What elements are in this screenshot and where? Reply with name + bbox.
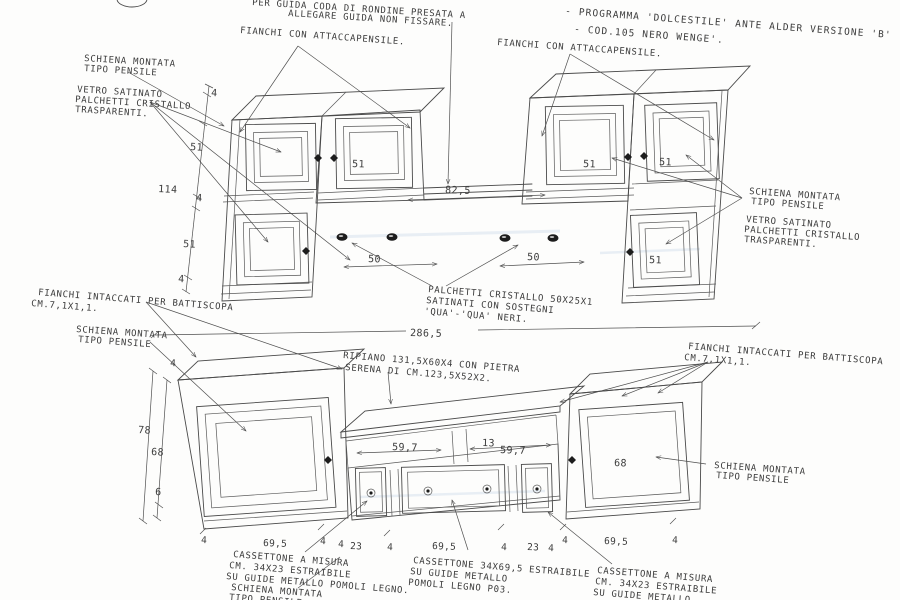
upper-view: 4 51 114 4 51 4 51 51 51 51 82,5 50 50 [128, 22, 750, 303]
drawer-band [348, 444, 560, 520]
dim-total-height: 114 [158, 184, 178, 196]
compartment-dividers [452, 429, 468, 464]
dim-bottom: 4 [178, 274, 185, 285]
dim-door-height: 68 [151, 447, 164, 459]
dim-top-thickness: 4 [211, 88, 218, 99]
glass-door-upper-left-2 [335, 117, 412, 188]
dim-knob-right: 50 [527, 252, 540, 263]
base-right-top-face [570, 362, 722, 394]
base-left-door [197, 398, 336, 517]
dim-b9: 4 [548, 543, 554, 554]
door-label-51-c: 51 [659, 157, 672, 168]
drawing-canvas: 4 51 114 4 51 4 51 51 51 51 82,5 50 50 [0, 0, 900, 600]
upper-leader-lines [128, 22, 742, 286]
dim-b5: 4 [387, 542, 393, 553]
cabinet-short-right [522, 94, 634, 204]
annotations: PER GUIDA CODA DI RONDINE PRESATA A ALLE… [31, 0, 892, 600]
cut-ellipse-artifact [117, 0, 147, 7]
dim-door-lower: 51 [183, 239, 196, 251]
door-label-51-d: 51 [649, 255, 662, 266]
lower-dimension-lines [139, 322, 760, 536]
dim-shelf-gap: 13 [482, 438, 495, 449]
door-label-51-b: 51 [583, 159, 596, 170]
upper-dimension-lines [182, 84, 584, 294]
right-group-top-divider [634, 70, 656, 94]
base-right-door-label: 68 [614, 458, 627, 469]
cabinet-short-left-bottom [318, 188, 424, 200]
dim-side-top: 4 [170, 358, 177, 369]
glass-door-upper-left-1 [245, 123, 316, 190]
dim-door-upper: 51 [190, 142, 203, 154]
dim-shelf-left: 59,7 [392, 442, 418, 454]
dim-bridge-width: 82,5 [445, 185, 471, 197]
right-group-top-face [530, 66, 750, 98]
cabinet-tall-right-side-line [709, 91, 722, 297]
dim-b10: 4 [562, 535, 568, 546]
program-line2: - COD.105 NERO WENGE'. [574, 24, 724, 46]
scanned-technical-drawing: 4 51 114 4 51 4 51 51 51 51 82,5 50 50 [0, 0, 900, 600]
stone-top [341, 386, 584, 432]
dim-plinth: 6 [155, 487, 162, 498]
dim-b12: 4 [672, 535, 678, 546]
dim-b2: 4 [320, 536, 326, 547]
dim-total-height-lower: 78 [138, 425, 151, 437]
note-fianchi-attaccapensile-left: FIANCHI CON ATTACCAPENSILE. [240, 26, 405, 47]
dim-b11: 69,5 [604, 536, 628, 548]
scan-artifacts [117, 0, 700, 497]
base-right-door [579, 402, 690, 507]
glass-door-lower-left [235, 213, 309, 285]
open-compartment [346, 415, 558, 468]
cabinet-tall-right [622, 90, 728, 303]
base-left-top-face [178, 349, 364, 380]
base-left-door-catch [324, 456, 332, 464]
dim-b6: 69,5 [432, 541, 456, 553]
left-group-top-divider [322, 92, 346, 116]
dim-b7: 4 [501, 542, 507, 553]
dim-b0: 4 [201, 535, 207, 546]
stone-top-edge [341, 406, 560, 438]
dim-b1: 69,5 [263, 538, 287, 550]
glass-door-upper-right-2 [645, 103, 720, 181]
dim-total-width: 286,5 [410, 328, 442, 340]
door-label-51-a: 51 [352, 159, 365, 170]
bottom-dimension-row: 4 69,5 4 4 23 4 69,5 4 23 4 4 69,5 4 [201, 535, 678, 554]
dim-shelf-right: 59,7 [500, 445, 526, 457]
note-fianchi-attaccapensile-right: FIANCHI CON ATTACCAPENSILE. [497, 38, 662, 59]
lower-view: 286,5 4 78 68 6 59,7 13 59,7 68 4 69,5 4… [138, 302, 760, 588]
dim-b4: 23 [350, 541, 362, 552]
base-right-door-catch [568, 456, 576, 464]
dim-shelf: 4 [196, 193, 203, 204]
dim-knob-left: 50 [368, 254, 381, 265]
dim-b3: 4 [338, 539, 344, 550]
glass-door-upper-right-1 [545, 105, 624, 184]
cabinet-short-right-bottom [526, 188, 634, 199]
dim-b8: 23 [527, 542, 539, 553]
